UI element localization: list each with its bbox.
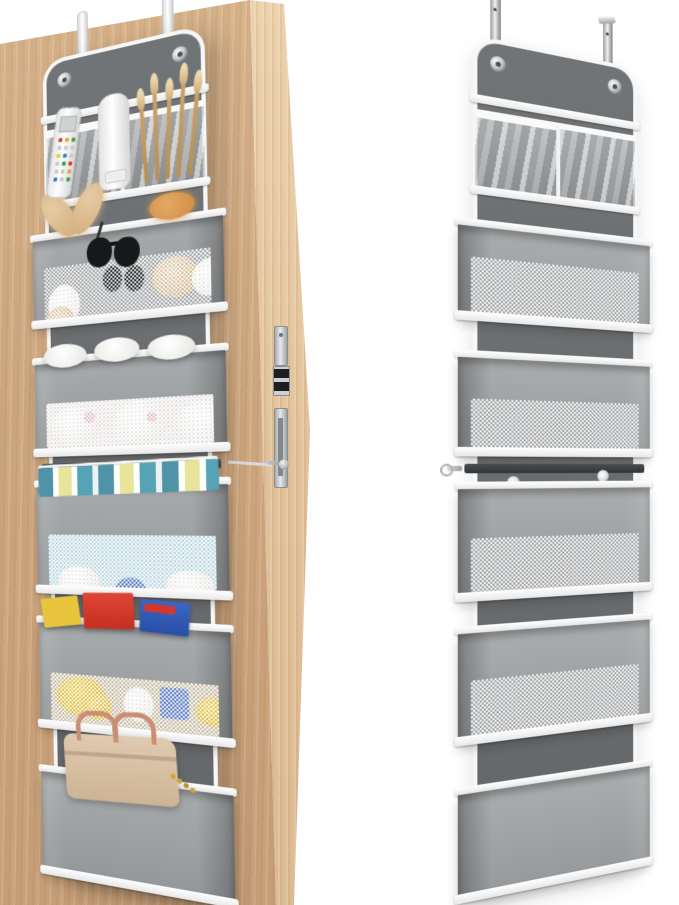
pencil-case xyxy=(160,687,190,721)
baby-clothes xyxy=(177,399,214,443)
row-mesh-bin-2 xyxy=(458,349,650,457)
latch-bolt-face xyxy=(274,382,289,391)
sunglasses-lens xyxy=(102,265,122,293)
diaper xyxy=(166,570,215,590)
latch-bolt-face xyxy=(274,369,289,378)
door-latch-bolt xyxy=(273,366,290,396)
mesh-window xyxy=(471,399,639,449)
strap-metal-hook xyxy=(447,466,462,471)
remote-buttons xyxy=(58,138,62,142)
baby-clothes xyxy=(84,411,96,423)
row-mesh-bin-1 xyxy=(33,208,225,330)
brush-icon xyxy=(188,91,200,175)
grommet-icon xyxy=(608,78,622,95)
cosmetic-item xyxy=(48,283,80,320)
mesh-window xyxy=(46,394,214,448)
pvc-pocket xyxy=(475,109,556,198)
brush-icon xyxy=(166,98,172,179)
pouch-item xyxy=(152,253,199,299)
mesh-window xyxy=(48,535,216,591)
makeup-brushes xyxy=(139,51,201,184)
product-photo xyxy=(0,0,679,905)
sunglasses-lens xyxy=(124,264,144,293)
handbag-flap xyxy=(64,750,176,761)
tissue-item xyxy=(192,256,212,298)
remote-screen xyxy=(59,116,78,132)
middle-strap xyxy=(464,464,644,474)
row-mesh-bin-3 xyxy=(458,481,650,603)
baby-clothes xyxy=(113,399,168,446)
yellow-folder xyxy=(40,595,81,628)
row-mesh-bin-2 xyxy=(35,343,228,458)
row-mesh-bin-3 xyxy=(37,477,230,601)
organizer-empty xyxy=(473,35,637,902)
grommet-icon xyxy=(57,71,71,89)
organizer-filled xyxy=(42,24,220,905)
door-strike-plate xyxy=(274,408,288,488)
handbag xyxy=(63,733,180,808)
trim-strip xyxy=(455,447,653,458)
grommet-icon xyxy=(490,55,506,74)
lotion-tube xyxy=(98,90,131,192)
screw-icon xyxy=(279,333,283,337)
toy xyxy=(195,696,219,729)
brush-icon xyxy=(153,93,160,181)
brush-icon xyxy=(176,83,185,177)
brush-icon xyxy=(139,108,148,183)
baby-clothes xyxy=(52,405,100,446)
door-latch-plate xyxy=(274,326,288,366)
blue-book xyxy=(139,599,190,637)
baby-clothes xyxy=(147,412,157,423)
handbag-chain xyxy=(170,774,176,780)
red-book xyxy=(82,593,134,630)
pvc-pocket xyxy=(556,122,635,208)
